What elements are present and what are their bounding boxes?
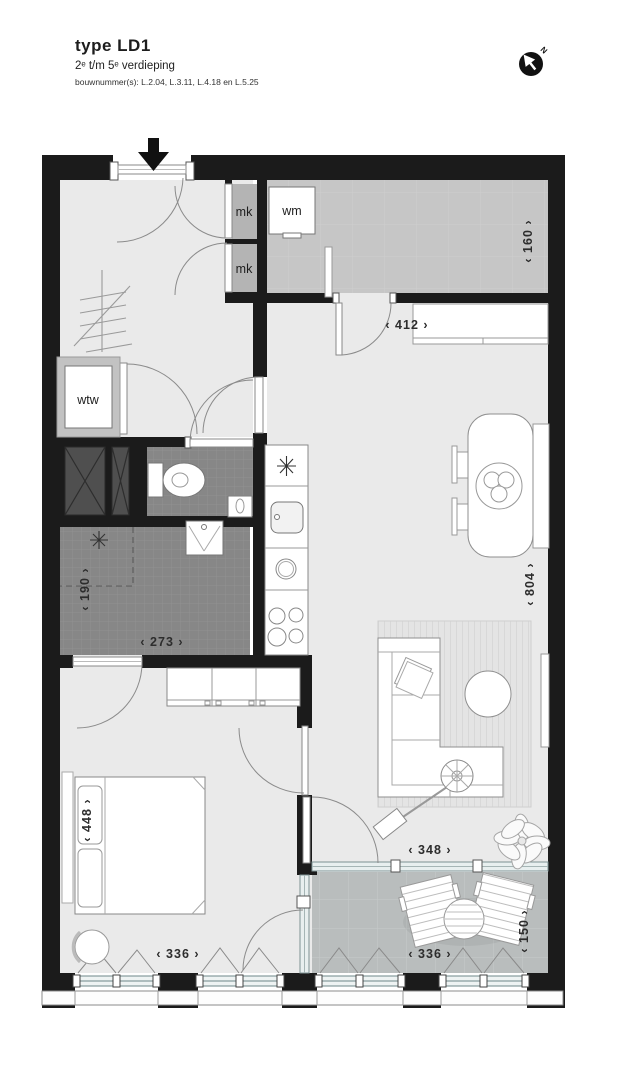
storage-door-leaf xyxy=(336,303,342,355)
dining-chair-2 xyxy=(452,498,457,535)
dining-bench xyxy=(533,424,549,548)
hall-living-door xyxy=(255,377,263,433)
dim-living-bottom-width: ‹ 348 › xyxy=(408,843,451,857)
bed-headboard xyxy=(62,772,73,903)
mk-door-bottom xyxy=(225,244,232,292)
dim-bedroom-width: ‹ 336 › xyxy=(156,947,199,961)
title-block: type LD1 2ᵉ t/m 5ᵉ verdieping bouwnummer… xyxy=(75,36,259,87)
kitchen-counter xyxy=(265,445,308,655)
plan-type-title: type LD1 xyxy=(75,36,259,56)
toilet-door xyxy=(190,439,253,447)
dim-bed-length: ‹ 448 › xyxy=(80,798,94,841)
wall-toilet-bath xyxy=(60,516,253,527)
dim-bathroom-width: ‹ 190 › xyxy=(78,567,92,610)
dim-storage-depth: ‹ 160 › xyxy=(521,219,535,262)
mk-top-label: mk xyxy=(236,205,253,219)
north-arrow-icon: N xyxy=(519,45,549,76)
wm-label: wm xyxy=(281,204,301,218)
north-label: N xyxy=(539,45,550,56)
balcony-door-leaf xyxy=(303,797,310,863)
wall-kitchen-bottom xyxy=(253,655,312,668)
wall-left xyxy=(42,155,60,1008)
balcony-table xyxy=(444,899,484,939)
living-radiator xyxy=(541,654,549,747)
toilet-cistern xyxy=(148,463,163,497)
floorplan-page: type LD1 2ᵉ t/m 5ᵉ verdieping bouwnummer… xyxy=(0,0,619,1092)
sideboard xyxy=(413,304,548,344)
bedroom-stool xyxy=(75,930,109,964)
pillow-2 xyxy=(78,849,102,907)
dim-living-top-width: ‹ 412 › xyxy=(385,318,428,332)
dim-bathroom-length: ‹ 273 › xyxy=(140,635,183,649)
washbasin-tap xyxy=(202,525,207,530)
wall-mk-right xyxy=(257,180,267,303)
plan-floors-subtitle: 2ᵉ t/m 5ᵉ verdieping xyxy=(75,60,259,72)
storage-panel xyxy=(325,247,332,297)
facade-sill xyxy=(42,991,563,1005)
plan-bouwnummers: bouwnummer(s): L.2.04, L.3.11, L.4.18 en… xyxy=(75,77,259,87)
mk-door-top xyxy=(225,184,232,238)
wall-bath-bottom xyxy=(142,655,253,668)
wtw-label: wtw xyxy=(76,393,100,407)
dining-chair-1 xyxy=(452,446,457,483)
wall-right xyxy=(548,155,565,1008)
dim-balcony-width: ‹ 336 › xyxy=(408,947,451,961)
shafts xyxy=(65,447,129,515)
storage-door-gap-floor xyxy=(337,293,392,303)
dim-living-length: ‹ 804 › xyxy=(523,562,537,605)
bedroom-door xyxy=(302,726,308,795)
coffee-table xyxy=(465,671,511,717)
dim-balcony-depth: ‹ 150 › xyxy=(517,909,531,952)
floorplan-drawing: N mk mk wm wtw ‹ 160 › ‹ 412 › ‹ 804 › ‹… xyxy=(0,0,619,1092)
wall-storage-bottom-right xyxy=(392,293,550,303)
wall-hall-right-upper xyxy=(253,303,267,377)
wall-top-right xyxy=(191,155,565,180)
mk-bottom-label: mk xyxy=(236,262,253,276)
